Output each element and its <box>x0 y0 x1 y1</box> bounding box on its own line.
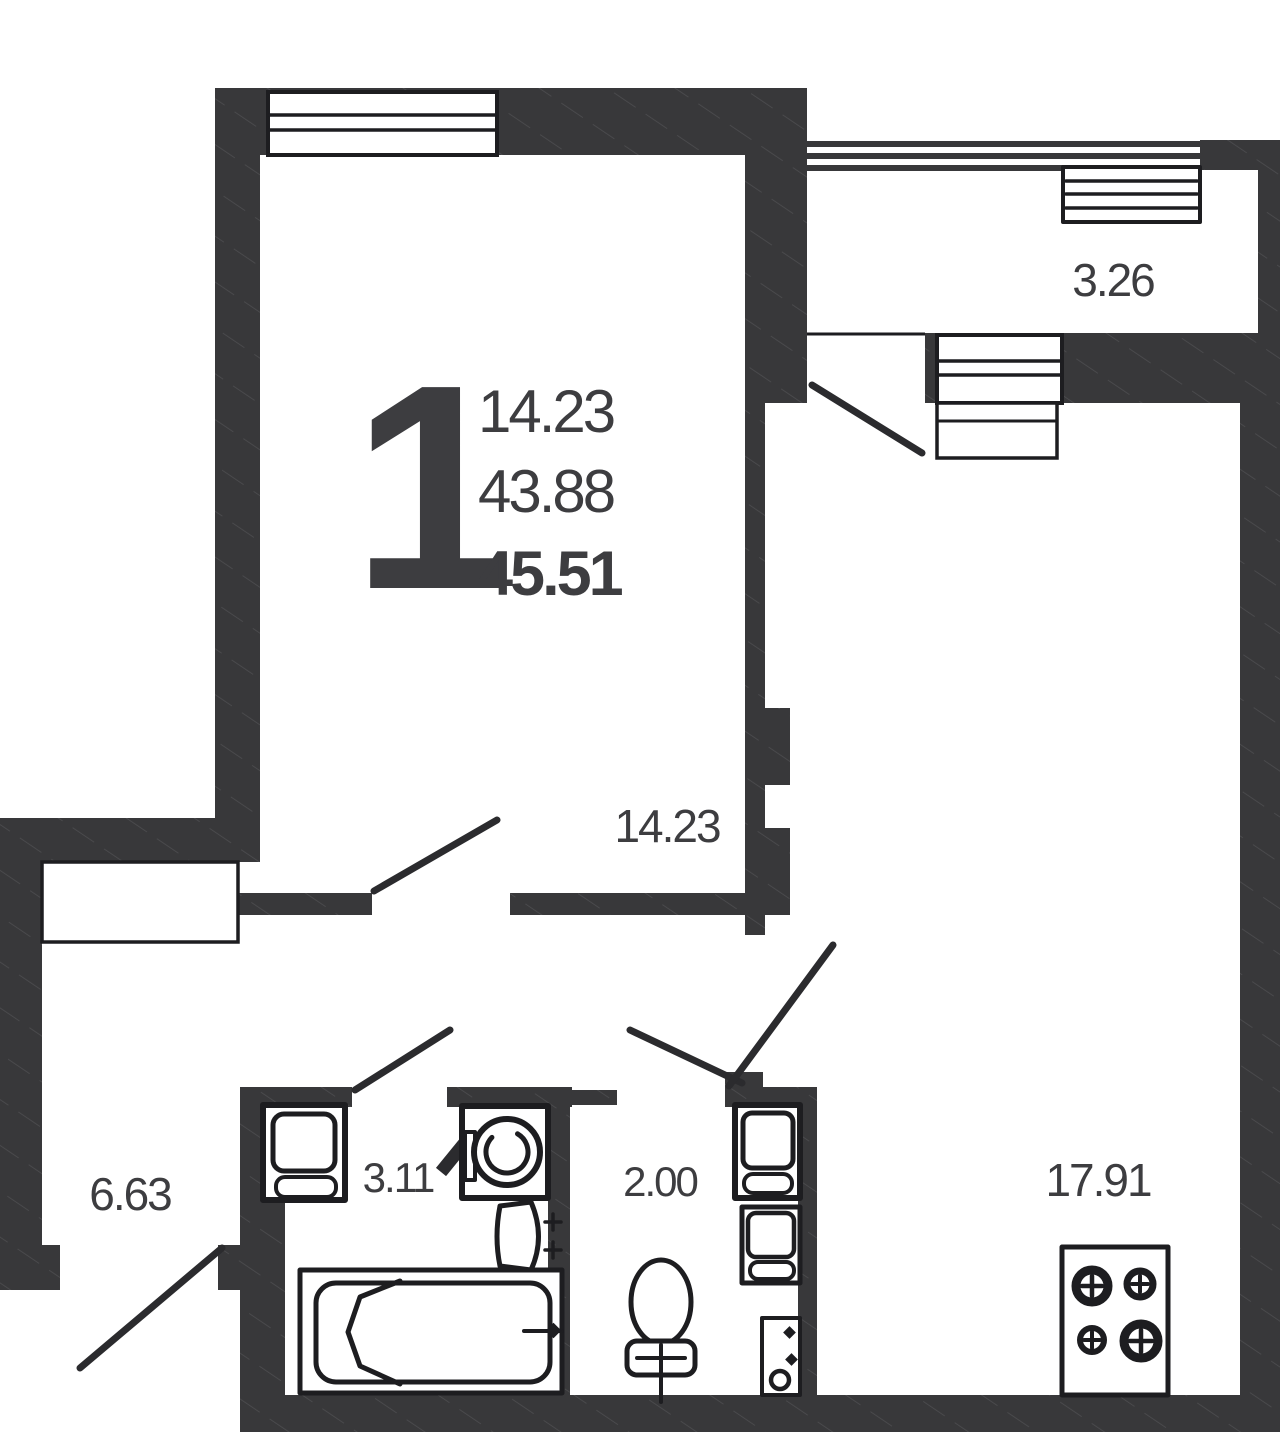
unit-stats: 1 14.23 43.88 45.51 <box>352 324 623 650</box>
bathtub <box>300 1270 562 1393</box>
radiator <box>1063 167 1200 222</box>
entrance-door-swing <box>80 1248 222 1368</box>
wc-area-label: 2.00 <box>623 1158 697 1205</box>
wc-door-swing <box>630 1030 742 1083</box>
bathroom-door-swing <box>355 1030 450 1090</box>
kitchen-unit-lower <box>742 1207 800 1283</box>
stove <box>1062 1247 1168 1395</box>
wall-pilaster-b <box>765 828 790 915</box>
washing-machine <box>462 1106 548 1198</box>
bathroom-area-label: 3.11 <box>363 1154 434 1201</box>
wall-entrance-jamb-left <box>0 1245 60 1290</box>
wall-hall-top <box>0 818 260 862</box>
total-area-value: 45.51 <box>478 539 623 609</box>
wall-pilaster-a <box>765 708 790 785</box>
balcony-area-label: 3.26 <box>1072 254 1154 306</box>
utility-shaft <box>762 1318 800 1395</box>
facade-niche <box>42 862 238 942</box>
floor-plan: 3.26 14.23 6.63 3.11 2.00 17.91 1 14.23 … <box>0 0 1280 1432</box>
kitchen-window <box>937 335 1062 458</box>
balcony-door-swing <box>812 385 922 453</box>
wall-bedroom-left <box>215 88 260 862</box>
kitchen-window-sill <box>937 403 1057 458</box>
wall-under-balcony <box>1062 333 1240 403</box>
kitchen-unit-upper <box>735 1105 800 1198</box>
wall-right-exterior <box>1240 333 1280 1432</box>
kitchen-area-label: 17.91 <box>1045 1154 1151 1206</box>
wall-left-exterior <box>0 862 42 1290</box>
wall-bedroom-bottom-right <box>510 893 745 915</box>
floor-plan-canvas: 3.26 14.23 6.63 3.11 2.00 17.91 1 14.23 … <box>0 0 1280 1432</box>
wall-bedroom-right <box>745 398 765 935</box>
kitchen-door-swing <box>729 945 833 1086</box>
wall-balcony-corner <box>1200 140 1280 170</box>
wall-bedroom-bottom-left <box>238 893 372 915</box>
toilet <box>627 1260 695 1402</box>
wall-bottom <box>240 1395 1280 1432</box>
wall-wc-top <box>572 1090 617 1105</box>
bedroom-window <box>268 92 497 155</box>
living-room-area-label: 14.23 <box>614 800 720 852</box>
wall-corner-column <box>745 88 807 403</box>
area-without-balcony-value: 43.88 <box>478 458 614 525</box>
bathroom-cabinet <box>263 1105 345 1200</box>
hallway-area-label: 6.63 <box>89 1168 171 1220</box>
living-area-value: 14.23 <box>478 378 614 445</box>
bedroom-door-swing <box>374 820 497 891</box>
